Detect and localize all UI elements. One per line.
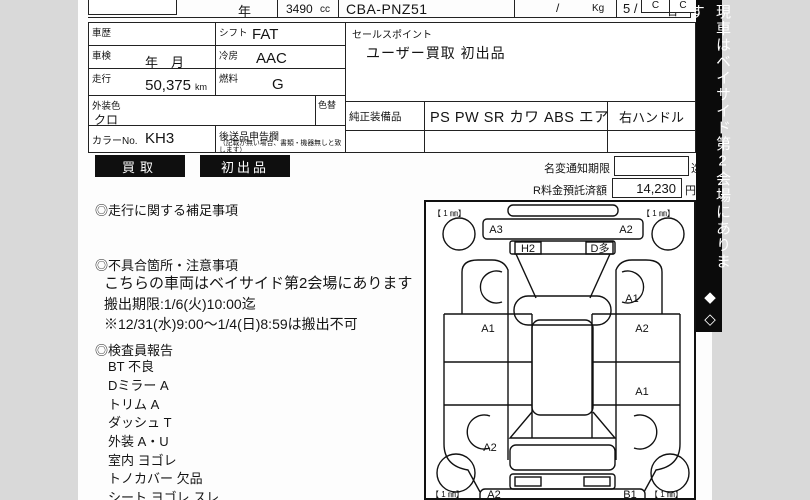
model-code: CBA-PNZ51 <box>346 1 428 17</box>
mileage-label: 走行 <box>92 71 111 85</box>
later-items-note: （記載が無い場合、書類・機器無しと致します） <box>219 140 345 154</box>
inspector-line: トリム A <box>108 394 159 413</box>
exterior-color-cell: 外装色 クロ <box>88 95 316 126</box>
history-cell: 車歴 <box>88 22 216 46</box>
damage-label: A2 <box>619 224 632 236</box>
wheel-front-right <box>652 218 684 250</box>
name-change-box <box>614 156 689 176</box>
weight-slash: / <box>556 1 559 15</box>
tire-corner-mark: 【 1 ㎜】 <box>431 490 464 498</box>
later-items-cell: 後送品申告欄 （記載が無い場合、書類・機器無しと致します） <box>215 125 346 153</box>
damage-label: A2 <box>635 323 648 335</box>
header-divider <box>514 0 515 17</box>
right-panel-outer <box>644 314 680 492</box>
sales-point-box: セールスポイント ユーザー買取 初出品 <box>345 22 696 102</box>
inspector-line: 室内 ヨゴレ <box>108 450 177 469</box>
color-no-cell: カラーNo. KH3 <box>88 125 216 153</box>
inspector-line: 外装 A・U <box>108 431 169 450</box>
sales-point-value: ユーザー買取 初出品 <box>366 43 506 63</box>
wheel-rear-right <box>651 454 689 492</box>
inspector-line: ダッシュ T <box>108 412 172 431</box>
equipment-label-cell: 純正装備品 <box>345 101 425 131</box>
right-front-fender <box>616 260 662 314</box>
damage-label: A2 <box>487 489 500 498</box>
damage-label: H2 <box>521 243 535 255</box>
front-bumper <box>508 205 618 216</box>
shift-label: シフト <box>219 25 248 39</box>
damage-label: B1 <box>623 489 636 498</box>
inspector-line: Dミラー A <box>108 375 169 394</box>
rear-light-right <box>584 477 610 486</box>
windshield-right-pillar <box>590 254 610 298</box>
ac-value: AAC <box>256 50 287 67</box>
equipment-label: 純正装備品 <box>346 109 402 124</box>
windshield-left-pillar <box>516 254 536 298</box>
damage-label: A2 <box>483 442 496 454</box>
ac-cell: 冷房 AAC <box>215 45 346 69</box>
equipment-empty-cell <box>345 130 425 153</box>
cc-label: cc <box>320 4 330 15</box>
header-bottom-border <box>88 17 691 18</box>
damage-label: A1 <box>625 293 638 305</box>
rear-bumper <box>510 474 615 489</box>
equipment-value: PS PW SR カワ ABS エアB <box>425 106 619 127</box>
right-rear-wheel-arch <box>634 415 657 449</box>
steering-value: 右ハンドル <box>619 107 684 126</box>
mileage-value: 50,375 <box>145 77 191 94</box>
sales-point-label: セールスポイント <box>352 26 432 41</box>
fuel-label: 燃料 <box>219 71 238 85</box>
shift-cell: シフト FAT <box>215 22 346 46</box>
inspection-cell: 車検 年 月 <box>88 45 216 69</box>
venue-banner-text: 現車はベイサイド第2会場にあります <box>683 4 735 284</box>
header-divider <box>277 0 278 17</box>
rear-window <box>510 412 615 438</box>
damage-label: A1 <box>481 323 494 335</box>
fuel-value: G <box>272 76 284 93</box>
purchase-badge: 買取 <box>95 155 185 177</box>
car-damage-diagram: A3A2H2D多A1A1A2A1A2A2B1【 1 ㎜】【 1 ㎜】【 1 ㎜】… <box>424 200 696 500</box>
first-listing-badge: 初出品 <box>200 155 290 177</box>
damage-label: A3 <box>489 224 502 236</box>
color-no-value: KH3 <box>145 130 174 147</box>
exterior-color-label: 外装色 <box>92 98 121 112</box>
repaint-label: 色替 <box>318 98 336 111</box>
recycle-fee-label: R料金預託済額 <box>495 182 607 198</box>
tire-corner-mark: 【 1 ㎜】 <box>433 209 466 218</box>
defect-line: 搬出期限:1/6(火)10:00迄 <box>104 294 256 314</box>
left-front-wheel-arch <box>480 271 502 303</box>
auction-sheet-page: 年 3490 cc CBA-PNZ51 / Kg 5 / 名 C C 車歴 シフ… <box>0 0 810 500</box>
name-change-label: 名変通知期限 <box>500 160 610 176</box>
wheel-front-left <box>443 218 475 250</box>
venue-banner-marks: ◆◇ <box>700 288 718 332</box>
inspector-line: シート ヨゴレ スレ <box>108 487 219 500</box>
defect-line: ※12/31(水)9:00〜1/4(日)8:59は搬出不可 <box>104 314 358 334</box>
header-empty-box <box>88 0 177 15</box>
tire-corner-mark: 【 1 ㎜】 <box>642 209 675 218</box>
inspector-line: BT 不良 <box>108 356 154 375</box>
displacement-value: 3490 <box>286 2 313 16</box>
inspector-line: トノカバー 欠品 <box>108 468 203 487</box>
tire-corner-mark: 【 1 ㎜】 <box>650 490 683 498</box>
defect-line: こちらの車両はベイサイド第2会場にあります <box>104 272 412 293</box>
ac-label: 冷房 <box>219 48 238 62</box>
inspection-label: 車検 <box>92 48 111 62</box>
header-divider <box>338 0 339 17</box>
roof-panel <box>532 320 593 415</box>
rear-light-left <box>515 477 541 486</box>
mileage-notes-title: ◎走行に関する補足事項 <box>95 200 238 219</box>
capacity-value: 5 / <box>623 1 637 16</box>
rear-bumper-bar <box>480 489 645 498</box>
grade-box: C <box>641 0 670 13</box>
mileage-cell: 走行 50,375 km <box>88 68 216 96</box>
recycle-fee-box: 14,230 <box>612 178 682 198</box>
left-panel-outer <box>444 314 480 492</box>
car-diagram-svg: A3A2H2D多A1A1A2A1A2A2B1【 1 ㎜】【 1 ㎜】【 1 ㎜】… <box>426 202 694 498</box>
history-label: 車歴 <box>92 25 111 39</box>
left-front-fender <box>462 260 508 314</box>
fuel-cell: 燃料 G <box>215 68 346 96</box>
header-divider <box>616 0 617 17</box>
damage-label: D多 <box>591 241 610 255</box>
equipment-empty-cell <box>424 130 608 153</box>
color-no-label: カラーNo. <box>92 132 138 147</box>
equipment-value-cell: PS PW SR カワ ABS エアB <box>424 101 608 131</box>
shift-value: FAT <box>252 26 278 43</box>
rear-deck <box>510 445 615 470</box>
damage-label: A1 <box>635 386 648 398</box>
mileage-unit: km <box>195 82 207 92</box>
repaint-cell: 色替 <box>315 95 346 126</box>
venue-banner: 現車はベイサイド第2会場にあります ◆◇ <box>696 0 722 332</box>
kg-label: Kg <box>592 3 604 14</box>
